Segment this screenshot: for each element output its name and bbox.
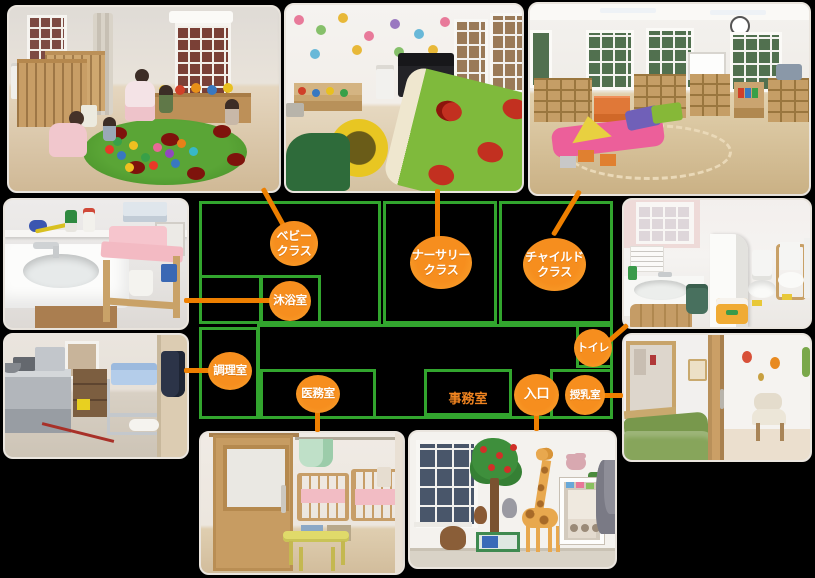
label-line: トイレ — [577, 341, 609, 354]
label-medical-room: 医務室 — [296, 375, 340, 413]
chair-legs — [756, 423, 760, 441]
ceiling-lights — [600, 8, 656, 13]
label-line: ベビー — [276, 229, 311, 243]
door-handle — [281, 485, 286, 513]
window-icon — [416, 440, 478, 528]
label-nursery-class: ナーサリー クラス — [410, 236, 472, 289]
caregiver-pink-apron — [49, 123, 87, 157]
label-line: 調理室 — [213, 364, 247, 378]
window-icon — [636, 202, 694, 244]
toys-on-shelf — [298, 87, 306, 95]
connector-bath — [184, 298, 272, 303]
label-line: 医務室 — [301, 387, 335, 401]
mural-apples — [480, 446, 487, 453]
door-signs — [566, 482, 574, 488]
label-line: ナーサリー — [412, 248, 470, 262]
mirror-reflection — [634, 349, 646, 375]
label-line: クラス — [277, 244, 312, 258]
soft-play-steps — [651, 102, 683, 124]
soap-bottle — [83, 208, 95, 232]
label-kitchen: 調理室 — [208, 352, 252, 390]
mural-monkey — [474, 506, 487, 524]
toddler-toilet-partial — [804, 238, 810, 298]
window-icon — [175, 23, 231, 101]
toddler-toilet-bowl — [748, 280, 776, 298]
soap-bottle — [65, 210, 77, 232]
label-baby-class: ベビー クラス — [270, 221, 318, 266]
blue-bin — [161, 264, 177, 282]
nursery-floorplan-infographic: ベビー クラス ナーサリー クラス チャイルド クラス 沐浴室 調理室 医務室 … — [0, 0, 815, 578]
green-sofa-seat — [624, 431, 714, 460]
label-office: 事務室 — [424, 388, 512, 407]
mural-elephant — [596, 460, 615, 534]
wall-stickers — [294, 15, 304, 25]
mural-bear — [440, 526, 466, 550]
basket — [286, 103, 304, 117]
green-bin — [686, 284, 708, 314]
cart-shelf — [109, 413, 161, 417]
child-figure — [225, 99, 239, 125]
mural-giraffe-neck — [534, 460, 551, 515]
toddler-toilet-tank — [780, 242, 800, 270]
supply-box — [123, 202, 167, 222]
toddler-toilet-tank — [752, 250, 772, 280]
air-purifier — [376, 65, 394, 99]
mural-giraffe-legs — [526, 526, 530, 552]
wall-edge — [395, 433, 403, 573]
photo-baby-class-room — [7, 5, 281, 193]
label-line: 授乳室 — [570, 389, 601, 402]
cubby-shelves — [690, 74, 730, 116]
mural-rabbit — [566, 456, 586, 470]
light-switch — [377, 467, 391, 487]
photo-nursing-room — [622, 333, 812, 462]
photo-toilet-room — [622, 198, 812, 329]
connector-entrance — [534, 414, 539, 431]
sink-wood-base — [630, 304, 692, 327]
soft-play-blocks-orange — [578, 150, 594, 162]
crib-pink-bedding — [355, 489, 395, 505]
frosted-door-window — [223, 445, 289, 511]
sink-basin — [634, 280, 688, 300]
label-child-class: チャイルド クラス — [523, 238, 586, 291]
sink-basin — [23, 254, 99, 288]
wall-stickers — [742, 351, 752, 363]
photo-nursery-class-room — [284, 3, 524, 193]
connector-nursing — [602, 393, 623, 398]
window-sill — [414, 522, 472, 527]
table-legs — [103, 260, 110, 322]
paper-roll — [129, 419, 159, 431]
label-line: クラス — [537, 265, 572, 279]
crib-pink-bedding — [301, 489, 345, 503]
inner-room-floor — [724, 429, 810, 460]
storage-box — [776, 64, 802, 80]
cubby-shelves — [768, 78, 809, 122]
connector-nursery-class — [435, 189, 440, 239]
photo-bath-room — [3, 198, 189, 330]
window-icon — [586, 30, 634, 90]
toddler-toilet-bowl — [778, 272, 804, 288]
mural-tree-crown — [472, 438, 518, 480]
connector-medical — [315, 410, 320, 432]
scattered-toys — [105, 145, 114, 154]
blue-cooler-box — [111, 363, 157, 385]
child-figure — [159, 85, 173, 113]
mural-koala — [502, 498, 517, 518]
mural-tree-trunk — [490, 478, 499, 538]
cubby-shelves — [534, 78, 592, 122]
photo-entrance — [408, 430, 617, 569]
red-sign — [650, 355, 656, 365]
stool-handle — [726, 310, 738, 315]
hanging-jacket — [161, 351, 185, 397]
hanging-clothes — [299, 439, 333, 467]
table-legs — [289, 541, 293, 565]
books — [738, 88, 744, 98]
label-line: 入口 — [524, 387, 549, 403]
stainless-counter — [5, 369, 71, 433]
plant-decor — [802, 347, 810, 377]
faucet-spout — [53, 246, 59, 258]
white-bucket — [129, 270, 153, 296]
photo-child-class-room — [528, 2, 811, 196]
yellow-box — [77, 399, 90, 410]
photo-medical-room — [199, 431, 405, 575]
yellow-foot-pads — [752, 300, 762, 306]
blue-bin — [482, 536, 498, 548]
caregiver-body — [125, 81, 155, 121]
label-toilet: トイレ — [574, 329, 612, 367]
kitchen-machine — [35, 347, 65, 371]
window-icon — [490, 13, 524, 93]
mural-giraffe-head — [535, 447, 554, 461]
photo-kitchen — [3, 333, 189, 459]
label-bath-room: 沐浴室 — [269, 281, 311, 321]
child-figure — [103, 117, 116, 141]
label-nursing-room: 授乳室 — [565, 375, 605, 415]
faucet-icon — [658, 272, 672, 277]
label-line: クラス — [424, 263, 459, 277]
label-line: 沐浴室 — [273, 294, 307, 308]
door-animal-figures — [570, 524, 578, 532]
ceiling — [530, 4, 809, 20]
label-entrance: 入口 — [514, 374, 559, 416]
window-valance — [169, 11, 233, 23]
soap-bottle — [628, 266, 637, 280]
play-tunnel — [286, 133, 350, 191]
door-sign — [688, 359, 707, 381]
label-line: チャイルド — [525, 250, 583, 264]
